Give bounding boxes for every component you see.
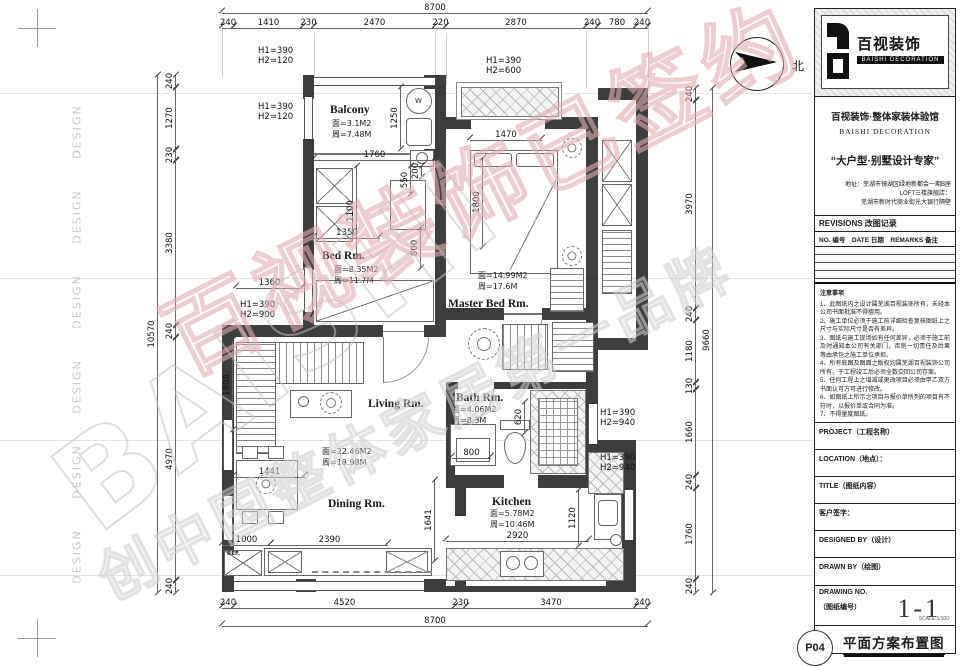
dim: 240 xyxy=(695,579,696,592)
room-perimeter: 周=8.3M xyxy=(452,417,486,425)
window-balcony-top xyxy=(314,77,435,86)
company-subtitle: 百视装饰·整体家装体验馆 xyxy=(815,109,955,123)
extension-line xyxy=(446,33,447,85)
crosshair-mark xyxy=(37,9,38,47)
dim: 240 xyxy=(222,608,234,609)
crosshair-mark xyxy=(37,619,38,657)
notes-section: 注意事项 1、此图纸内之设计属芜湖百视装饰所有，未经本公司书面批准不得擅用。 2… xyxy=(815,286,955,422)
window-dining-left xyxy=(223,496,233,540)
room-perimeter: 周=11.7M xyxy=(334,277,373,285)
wall-segment xyxy=(424,325,446,337)
ceiling-ornament xyxy=(468,328,500,360)
room-area: 面=14.99M2 xyxy=(478,272,528,280)
washer-label: W xyxy=(415,97,422,105)
room-perimeter: 周=10.46M xyxy=(490,521,535,529)
revision-row xyxy=(815,263,955,271)
wall-segment xyxy=(446,475,504,488)
wall-segment xyxy=(494,382,598,389)
wall-segment xyxy=(424,579,446,592)
subtitle-section: 百视装饰·整体家装体验馆 BAISHI DECORATION xyxy=(815,97,955,143)
brand-name-en: BAISHI DECORATION xyxy=(857,56,944,64)
margin-design-text: DESIGN xyxy=(71,104,84,158)
room-label-master: Master Bed Rm. xyxy=(448,298,529,310)
toilet xyxy=(504,432,526,464)
bed xyxy=(316,280,434,322)
dim-right-total: 9660 xyxy=(712,88,713,592)
dim: 3970 xyxy=(695,100,696,308)
slogan-section: “大户型·别墅设计专家” xyxy=(815,143,955,177)
chair xyxy=(242,511,258,524)
note-item: 3、图纸与施工现场如有任何差异，必须于施工前及时通知本公司有关部门，否则一切责任… xyxy=(820,335,950,361)
pillow xyxy=(516,153,554,167)
dim: 4970 xyxy=(175,337,176,580)
table-decor xyxy=(298,396,309,407)
dim: 1270 xyxy=(175,87,176,149)
chair xyxy=(268,511,284,524)
extension-line xyxy=(586,33,587,88)
note-item: 6、如图纸上所示之项目与报价单所列的项目有不符时，以报价单或合同为准。 xyxy=(820,394,950,411)
burner xyxy=(506,556,520,570)
dim: 1100 xyxy=(356,166,357,256)
room-perimeter: 周=17.6M xyxy=(478,283,517,291)
plant-ornament xyxy=(562,246,582,266)
dim: 1760 xyxy=(314,160,435,161)
bay-window-stone xyxy=(461,87,559,117)
note-item: 4、所有底图及图面之版权均属芜湖百视装饰公司所有，于工程竣工后必须全数交回公司存… xyxy=(820,360,950,377)
dim: 2920 xyxy=(446,541,589,542)
dim: 1360 xyxy=(236,288,303,289)
opening-label: H1=390H2=940 xyxy=(600,408,635,428)
wall-segment xyxy=(303,160,314,270)
master-wardrobe xyxy=(550,268,584,312)
chair xyxy=(242,446,258,459)
address-line: LOFT三楼旗舰店： xyxy=(819,190,951,199)
wall-segment xyxy=(598,440,636,452)
note-item: 5、任何工程上之增减或更改项目必须由甲乙双方书面认可方可进行修改。 xyxy=(820,377,950,394)
room-area: 面=4.06M2 xyxy=(452,406,497,414)
window-bed-left xyxy=(304,268,313,312)
location-field: LOCATION（地点）： xyxy=(815,449,955,476)
plant-ornament xyxy=(562,138,582,158)
room-label-balcony: Balcony xyxy=(330,104,370,116)
wall-segment xyxy=(598,338,636,350)
project-field: PROJECT（工程名称） xyxy=(815,422,955,449)
dim: 240 xyxy=(222,28,234,29)
wardrobe xyxy=(316,168,353,204)
dim: 4520 xyxy=(234,608,455,609)
north-arrow-icon xyxy=(731,38,781,88)
dim: 1641 xyxy=(434,480,435,560)
margin-design-text: DESIGN xyxy=(71,189,84,243)
margin-design-text: DESIGN xyxy=(71,359,84,413)
room-area: 面=5.78M2 xyxy=(490,510,535,518)
floorplan-page: { "page": { "north_label": "北", "design_… xyxy=(0,0,960,661)
room-label-kitchen: Kitchen xyxy=(492,496,531,508)
refrigerator-label: REF. xyxy=(227,551,240,557)
baishi-logo-icon xyxy=(826,23,852,81)
extension-line xyxy=(314,33,315,77)
address-line: 地址：芜湖市镜湖区绿地新都会一期B座 xyxy=(819,181,951,190)
revision-row xyxy=(815,271,955,279)
window-balcony-left xyxy=(304,97,313,139)
page-guide-line xyxy=(0,278,812,279)
room-label-bath: Bath Rm. xyxy=(456,392,503,404)
dim: 3380 xyxy=(175,160,176,325)
margin-design-text: DESIGN xyxy=(71,274,84,328)
laundry-sink xyxy=(406,118,432,146)
extension-line xyxy=(435,33,436,77)
drawn-by-field: DRAWN BY（绘图） xyxy=(815,557,955,585)
dim-left-total: 10570 xyxy=(157,75,158,592)
note-item: 7、不得量度图纸。 xyxy=(820,411,950,420)
dim: 1410 xyxy=(234,28,303,29)
dim: 1470 xyxy=(470,140,542,141)
dim: 1350 xyxy=(314,238,380,239)
note-item: 2、施工单位必须于施工前详细检查复核图纸上之尺寸与实际尺寸是否有差异。 xyxy=(820,318,950,335)
room-perimeter: 周=18.98M xyxy=(322,459,367,467)
dim: 1760 xyxy=(695,488,696,579)
opening-label: H1=390H2=940 xyxy=(600,453,635,473)
dim: 240 xyxy=(636,608,648,609)
address-section: 地址：芜湖市镜湖区绿地新都会一期B座 LOFT三楼旗舰店： 芜湖市新时代商业街光… xyxy=(815,177,955,215)
sideboard-unit xyxy=(386,551,428,573)
dim: 1441 xyxy=(234,477,305,478)
room-label-living: Living Rm. xyxy=(368,398,424,410)
revisions-header: REVISIONS 改图记录 xyxy=(815,215,955,232)
dim: 620 xyxy=(524,402,525,432)
divider xyxy=(815,279,955,284)
opening-label: H1=390H2=900 xyxy=(240,300,275,320)
bed-door-arc xyxy=(383,337,429,383)
wall-segment xyxy=(636,88,648,350)
wall-segment xyxy=(435,87,446,337)
dim: 240 xyxy=(586,28,598,29)
opening-label: H1=390H2=600 xyxy=(486,56,521,76)
opening-label: H1=390H2=120 xyxy=(258,102,293,122)
dim-bottom-total: 8700 xyxy=(222,626,648,627)
dim: 240 xyxy=(175,580,176,592)
revision-row xyxy=(815,255,955,263)
dim: 1180 xyxy=(695,320,696,382)
dim: 2870 xyxy=(446,28,586,29)
window-kitchen-right xyxy=(624,490,634,540)
opening-label: H1=390H2=120 xyxy=(258,46,293,66)
shaft-shelf xyxy=(602,230,632,294)
blanket-fold xyxy=(510,180,556,270)
logo-band: 百视装饰 BAISHI DECORATION · · · · · · · · · xyxy=(815,9,955,97)
shaft-closet xyxy=(602,140,632,182)
brand-name: 百视装饰 xyxy=(857,33,944,54)
hall-cabinet xyxy=(502,324,548,370)
wall-segment xyxy=(455,488,466,516)
company-slogan: “大户型·别墅设计专家” xyxy=(815,153,955,168)
door-sill xyxy=(504,313,542,315)
sideboard-unit xyxy=(268,551,302,573)
dim: 200 xyxy=(421,166,422,176)
shaft-closet xyxy=(602,184,632,226)
room-area: 面=8.35M2 xyxy=(334,266,379,274)
sheet-title-section: P04 平面方案布置图 SCALE:1/100 xyxy=(815,625,955,626)
notes-title: 注意事项 xyxy=(820,290,950,299)
dim: 800 xyxy=(420,228,421,267)
dim: 230 xyxy=(455,608,466,609)
revision-row xyxy=(815,247,955,255)
margin-design-text: DESIGN xyxy=(71,444,84,498)
north-arrow xyxy=(730,37,784,91)
wall-segment xyxy=(222,579,234,592)
dim: 230 xyxy=(303,28,314,29)
dim: 1800 xyxy=(482,158,483,246)
drain xyxy=(610,534,622,546)
room-label-dining: Dining Rm. xyxy=(328,498,385,510)
room-area: 面=22.46M2 xyxy=(322,448,372,456)
signature-field: 客户签字： xyxy=(815,503,955,530)
extension-line xyxy=(648,22,649,88)
sofa-vertical xyxy=(236,342,276,454)
designed-by-field: DESIGNED BY（设计） xyxy=(815,530,955,557)
sink-basin xyxy=(598,500,618,526)
brand-tagline: · · · · · · · · · xyxy=(857,66,944,72)
dim: 780 xyxy=(598,28,636,29)
dim-top-total: 8700 xyxy=(222,13,648,14)
window-bath-right xyxy=(588,404,598,444)
chair xyxy=(268,446,284,459)
revisions-columns: NO. 编号 DATE 日期 REMARKS 备注 xyxy=(815,232,955,247)
north-label: 北 xyxy=(792,57,804,74)
margin-design-text: DESIGN xyxy=(71,529,84,583)
sheet-title: 平面方案布置图 xyxy=(843,632,945,655)
dim: 3470 xyxy=(466,608,636,609)
room-area: 面=3.1M2 xyxy=(332,120,371,128)
dim: 2470 xyxy=(314,28,435,29)
title-field: TITLE（图纸内容） xyxy=(815,476,955,503)
wall-segment xyxy=(446,586,636,592)
scale-label: SCALE:1/100 xyxy=(919,616,949,622)
hall-cabinet xyxy=(552,322,594,372)
bed-door-leaf xyxy=(383,337,384,383)
title-block: 百视装饰 BAISHI DECORATION · · · · · · · · ·… xyxy=(814,8,956,654)
sliding-door xyxy=(312,571,432,573)
address-line: 芜湖市新时代商业街光大银行隔壁 xyxy=(819,199,951,208)
shower-tile xyxy=(538,398,578,466)
wall-segment xyxy=(222,325,383,337)
dim: 800 xyxy=(452,458,491,459)
dim: 220 xyxy=(435,28,446,29)
company-subtitle-en: BAISHI DECORATION xyxy=(815,127,955,136)
window-bottom xyxy=(234,581,424,591)
door-sill xyxy=(383,331,424,332)
room-label-bed: Bed Rm. xyxy=(322,250,365,262)
burner xyxy=(524,556,538,570)
dim: 1660 xyxy=(695,389,696,475)
room-perimeter: 周=7.48M xyxy=(332,131,371,139)
dim: 1120 xyxy=(578,490,579,545)
dim: 240 xyxy=(636,28,648,29)
note-item: 1、此图纸内之设计属芜湖百视装饰所有，未经本公司书面批准不得擅用。 xyxy=(820,301,950,318)
dim: 1000 xyxy=(222,545,271,546)
extension-line xyxy=(222,22,223,77)
dim: 1250 xyxy=(400,87,401,148)
dim: 1808 xyxy=(232,340,233,429)
dim: 2390 xyxy=(271,545,388,546)
table-flower xyxy=(320,392,342,414)
